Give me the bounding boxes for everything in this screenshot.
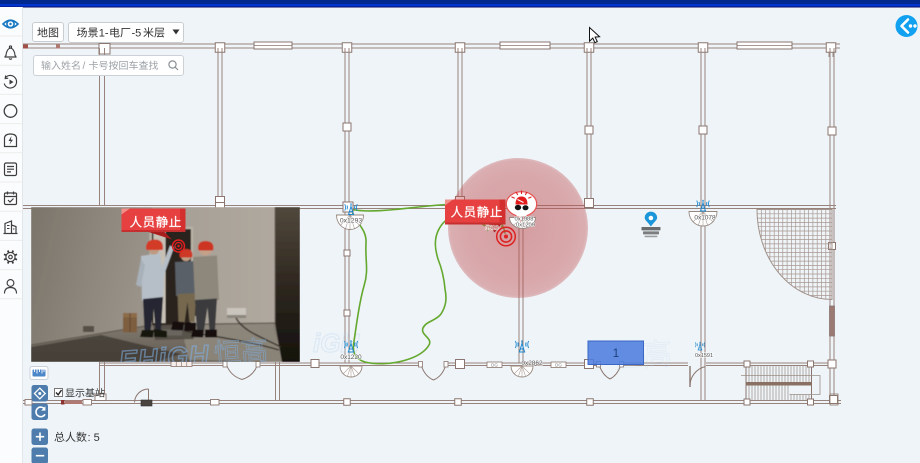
- svg-text:-5: -5: [132, 28, 142, 40]
- svg-text:1-: 1-: [99, 28, 109, 40]
- svg-text:/: /: [83, 61, 86, 72]
- svg-text:: 5: : 5: [88, 432, 100, 444]
